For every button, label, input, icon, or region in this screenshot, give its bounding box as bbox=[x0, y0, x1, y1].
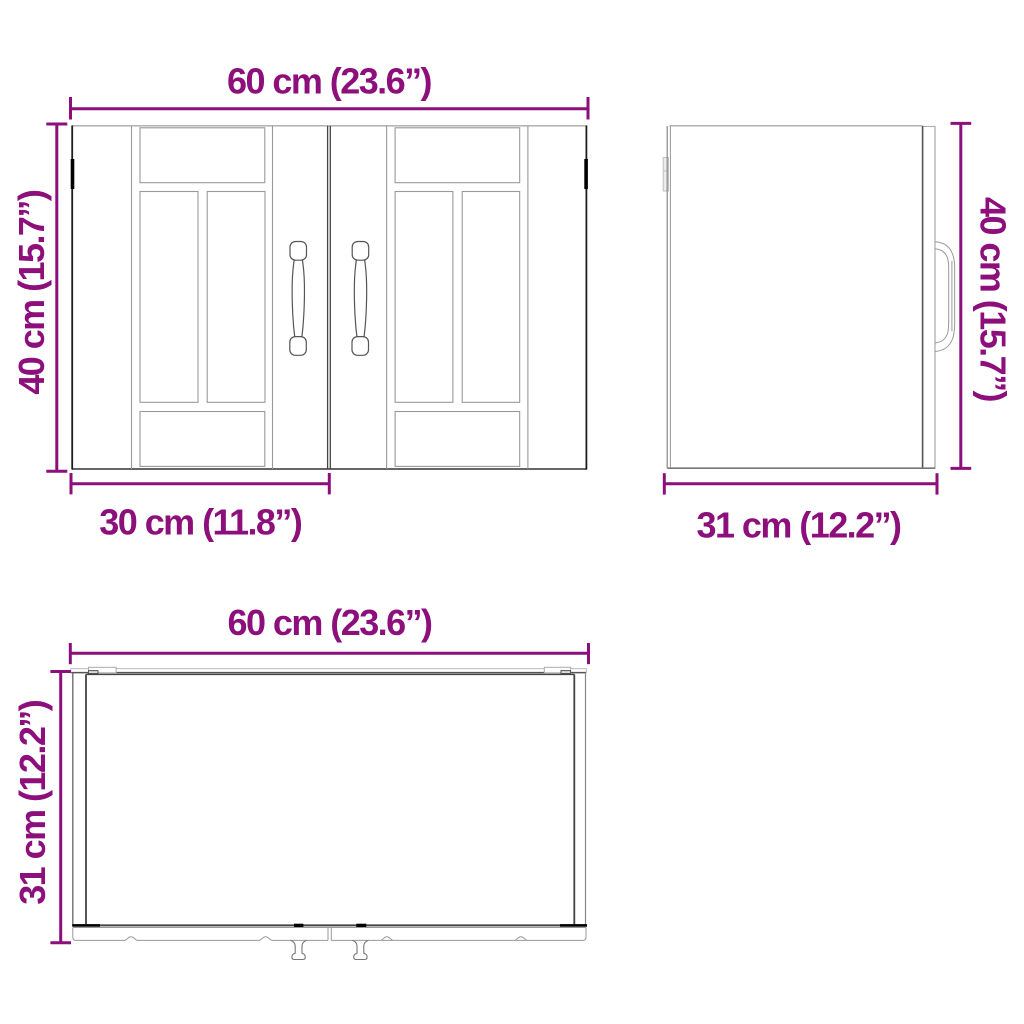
svg-text:40 cm (15.7”): 40 cm (15.7”) bbox=[973, 197, 1014, 402]
svg-text:31 cm (12.2”): 31 cm (12.2”) bbox=[12, 700, 53, 905]
svg-text:30 cm (11.8”): 30 cm (11.8”) bbox=[99, 502, 302, 543]
svg-text:40 cm (15.7”): 40 cm (15.7”) bbox=[11, 190, 52, 395]
svg-text:31 cm (12.2”): 31 cm (12.2”) bbox=[697, 505, 902, 546]
svg-text:60 cm (23.6”): 60 cm (23.6”) bbox=[228, 602, 433, 643]
svg-text:60 cm (23.6”): 60 cm (23.6”) bbox=[227, 61, 432, 102]
